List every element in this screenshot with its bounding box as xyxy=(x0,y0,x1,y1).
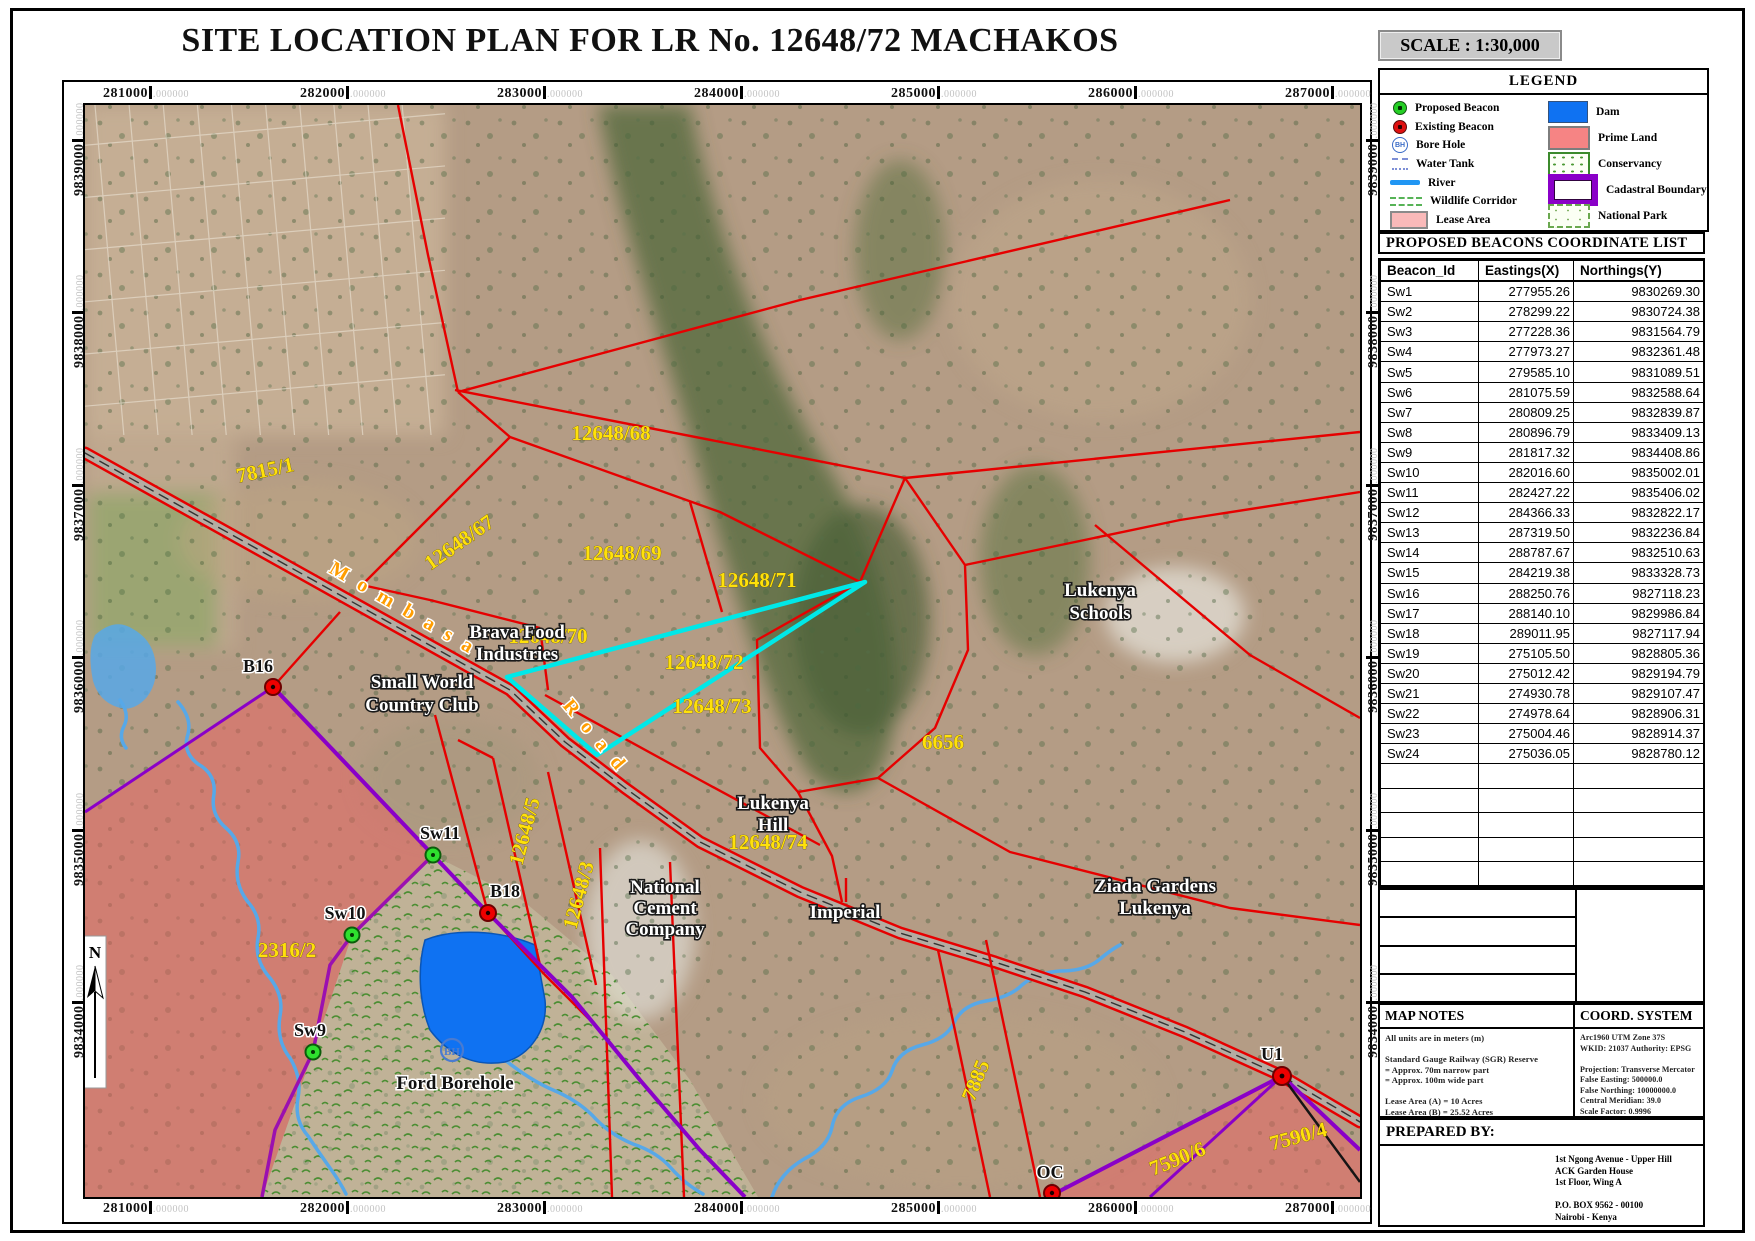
northing-cell: 9830269.30 xyxy=(1574,281,1704,302)
table-row: Sw13 287319.50 9832236.84 xyxy=(1381,523,1704,543)
easting-cell: 277228.36 xyxy=(1479,322,1574,342)
easting-cell: 275004.46 xyxy=(1479,724,1574,744)
beacon-label: Sw11 xyxy=(420,823,460,843)
address-line: ACK Garden House xyxy=(1555,1166,1672,1178)
place-label: Cement xyxy=(633,898,697,919)
place-label: Hill xyxy=(758,815,789,836)
table-row: Sw12 284366.33 9832822.17 xyxy=(1381,503,1704,523)
water-tank-icon xyxy=(1392,158,1408,170)
table-row: Sw3 277228.36 9831564.79 xyxy=(1381,322,1704,342)
easting-cell: 288140.10 xyxy=(1479,603,1574,623)
axis-label-x: 287000.000000 xyxy=(1285,86,1371,102)
beacon-id-cell: Sw7 xyxy=(1381,402,1479,422)
table-row: Sw18 289011.95 9827117.94 xyxy=(1381,623,1704,643)
prime-land-swatch xyxy=(1548,126,1590,150)
proposed-beacon-icon xyxy=(1393,101,1407,115)
parcel-label: 6656 xyxy=(922,730,964,754)
coordinate-system: COORD. SYSTEM Arc1960 UTM Zone 37SWKID: … xyxy=(1575,1005,1703,1116)
easting-cell: 278299.22 xyxy=(1479,302,1574,322)
easting-cell: 280809.25 xyxy=(1479,402,1574,422)
axis-label-x: 285000.000000 xyxy=(891,86,977,102)
parcel-label: 12648/68 xyxy=(571,421,650,445)
beacon-id-cell: Sw8 xyxy=(1381,422,1479,442)
prepared-by-lines: 1st Ngong Avenue - Upper HillACK Garden … xyxy=(1555,1154,1672,1223)
empty-row xyxy=(1381,813,1704,837)
northing-cell: 9832361.48 xyxy=(1574,342,1704,362)
northing-cell: 9834408.86 xyxy=(1574,442,1704,462)
beacon-id-cell: Sw12 xyxy=(1381,503,1479,523)
parcel-label: 12648/69 xyxy=(582,541,661,565)
empty-row xyxy=(1381,837,1704,861)
legend-item-prime-land: Prime Land xyxy=(1548,125,1707,151)
table-row: Sw11 282427.22 9835406.02 xyxy=(1381,483,1704,503)
easting-cell: 282427.22 xyxy=(1479,483,1574,503)
note-line: Lease Area (A) = 10 Acres xyxy=(1385,1096,1570,1107)
northing-cell: 9828906.31 xyxy=(1574,704,1704,724)
easting-cell: 281075.59 xyxy=(1479,382,1574,402)
easting-cell: 288787.67 xyxy=(1479,543,1574,563)
northing-cell: 9829107.47 xyxy=(1574,683,1704,703)
notes-section: MAP NOTES All units are in meters (m)Sta… xyxy=(1378,1003,1705,1118)
place-label: Industries xyxy=(476,644,558,665)
beacon-id-cell: Sw9 xyxy=(1381,442,1479,462)
legend-item-dam: Dam xyxy=(1548,99,1707,125)
place-label: Ziada Gardens xyxy=(1094,876,1216,897)
beacon-id-cell: Sw10 xyxy=(1381,462,1479,482)
table-row: Sw1 277955.26 9830269.30 xyxy=(1381,281,1704,302)
easting-cell: 274930.78 xyxy=(1479,683,1574,703)
existing-beacon-icon xyxy=(1393,120,1407,134)
prepared-by-title: PREPARED BY: xyxy=(1380,1120,1703,1146)
beacon-id-cell: Sw5 xyxy=(1381,362,1479,382)
coord-line: Projection: Transverse Mercator xyxy=(1580,1065,1700,1076)
empty-row xyxy=(1381,764,1704,788)
axis-label-x: 281000.000000 xyxy=(103,86,189,102)
northing-cell: 9833328.73 xyxy=(1574,563,1704,583)
axis-label-x: 284000.000000 xyxy=(694,1201,780,1217)
northing-cell: 9831089.51 xyxy=(1574,362,1704,382)
table-row: Sw2 278299.22 9830724.38 xyxy=(1381,302,1704,322)
place-label: National xyxy=(630,877,700,898)
table-header-row: Beacon_Id Eastings(X) Northings(Y) xyxy=(1381,261,1704,282)
coord-line: Arc1960 UTM Zone 37S xyxy=(1580,1033,1700,1044)
beacon-label: Sw9 xyxy=(294,1020,326,1040)
beacon-id-cell: Sw6 xyxy=(1381,382,1479,402)
note-line xyxy=(1385,1086,1570,1097)
easting-cell: 275105.50 xyxy=(1479,643,1574,663)
northing-cell: 9832236.84 xyxy=(1574,523,1704,543)
note-line: Standard Gauge Railway (SGR) Reserve xyxy=(1385,1054,1570,1065)
existing-beacon-icon xyxy=(480,905,496,921)
address-line: 1st Floor, Wing A xyxy=(1555,1177,1672,1189)
easting-cell: 284219.38 xyxy=(1479,563,1574,583)
legend-title: LEGEND xyxy=(1380,70,1707,95)
beacon-coordinate-table: Beacon_Id Eastings(X) Northings(Y) Sw1 2… xyxy=(1378,258,1705,888)
table-row: Sw5 279585.10 9831089.51 xyxy=(1381,362,1704,382)
empty-grid-section xyxy=(1378,888,1705,1003)
beacon-id-cell: Sw24 xyxy=(1381,744,1479,764)
map-canvas: 7815/1 12648/67 12648/68 12648/69 12648/… xyxy=(83,103,1362,1199)
scale-label: SCALE : 1:30,000 xyxy=(1400,35,1540,56)
empty-row xyxy=(1380,975,1575,1001)
beacon-label: B18 xyxy=(490,881,520,901)
place-label: Small World xyxy=(371,672,474,693)
empty-row xyxy=(1381,861,1704,885)
beacon-id-cell: Sw18 xyxy=(1381,623,1479,643)
easting-cell: 280896.79 xyxy=(1479,422,1574,442)
address-line xyxy=(1555,1189,1672,1201)
axis-label-x: 287000.000000 xyxy=(1285,1201,1371,1217)
axis-label-x: 282000.000000 xyxy=(300,86,386,102)
existing-beacon-icon xyxy=(265,679,281,695)
legend-item-lease-area: Lease Area xyxy=(1390,211,1548,230)
northing-cell: 9835002.01 xyxy=(1574,462,1704,482)
beacon-id-cell: Sw16 xyxy=(1381,583,1479,603)
beacon-table-title: PROPOSED BEACONS COORDINATE LIST xyxy=(1378,232,1705,254)
address-line: 1st Ngong Avenue - Upper Hill xyxy=(1555,1154,1672,1166)
dam-swatch xyxy=(1548,101,1588,123)
axis-label-x: 285000.000000 xyxy=(891,1201,977,1217)
table-row: Sw20 275012.42 9829194.79 xyxy=(1381,663,1704,683)
axis-label-x: 282000.000000 xyxy=(300,1201,386,1217)
northing-cell: 9832822.17 xyxy=(1574,503,1704,523)
borehole-icon: BH xyxy=(1392,137,1408,153)
easting-cell: 275036.05 xyxy=(1479,744,1574,764)
axis-label-x: 283000.000000 xyxy=(497,1201,583,1217)
northing-cell: 9833409.13 xyxy=(1574,422,1704,442)
beacon-id-cell: Sw21 xyxy=(1381,683,1479,703)
note-line: = Approx. 100m wide part xyxy=(1385,1075,1570,1086)
place-label-ford-borehole: Ford Borehole xyxy=(396,1073,513,1094)
wildlife-corridor-icon xyxy=(1390,197,1422,206)
empty-row xyxy=(1380,890,1575,918)
beacon-label: Sw10 xyxy=(324,903,365,923)
place-label: Lukenya xyxy=(1064,580,1136,601)
beacon-label: U1 xyxy=(1261,1044,1283,1064)
empty-row xyxy=(1381,788,1704,812)
easting-cell: 281817.32 xyxy=(1479,442,1574,462)
place-label: Country Club xyxy=(365,695,479,716)
table-row: Sw7 280809.25 9832839.87 xyxy=(1381,402,1704,422)
beacon-label: B16 xyxy=(243,656,273,676)
parcel-label: 12648/72 xyxy=(664,650,743,674)
address-line: P.O. BOX 9562 - 00100 xyxy=(1555,1200,1672,1212)
place-label: Lukenya xyxy=(1119,898,1191,919)
empty-row xyxy=(1380,947,1575,975)
table-row: Sw8 280896.79 9833409.13 xyxy=(1381,422,1704,442)
page-title: SITE LOCATION PLAN FOR LR No. 12648/72 M… xyxy=(150,22,1150,60)
axis-label-x: 286000.000000 xyxy=(1088,86,1174,102)
beacon-id-cell: Sw19 xyxy=(1381,643,1479,663)
coord-line: Scale Factor: 0.9996 xyxy=(1580,1107,1700,1118)
northing-cell: 9835406.02 xyxy=(1574,483,1704,503)
empty-cell xyxy=(1575,890,1703,1001)
note-line: All units are in meters (m) xyxy=(1385,1033,1570,1044)
beacon-id-cell: Sw14 xyxy=(1381,543,1479,563)
parcel-label: 12648/71 xyxy=(717,568,796,592)
table-row: Sw23 275004.46 9828914.37 xyxy=(1381,724,1704,744)
northing-cell: 9831564.79 xyxy=(1574,322,1704,342)
prepared-by-section: PREPARED BY: 1st Ngong Avenue - Upper Hi… xyxy=(1378,1118,1705,1227)
easting-cell: 289011.95 xyxy=(1479,623,1574,643)
column-header: Beacon_Id xyxy=(1381,261,1479,282)
column-header: Eastings(X) xyxy=(1479,261,1574,282)
legend-item-national-park: National Park xyxy=(1548,203,1707,229)
beacon-id-cell: Sw3 xyxy=(1381,322,1479,342)
cadastral-boundary-swatch xyxy=(1548,174,1598,206)
scale-box: SCALE : 1:30,000 xyxy=(1378,30,1562,61)
coord-line: False Northing: 10000000.0 xyxy=(1580,1086,1700,1097)
table-row: Sw6 281075.59 9832588.64 xyxy=(1381,382,1704,402)
table-row: Sw17 288140.10 9829986.84 xyxy=(1381,603,1704,623)
easting-cell: 277955.26 xyxy=(1479,281,1574,302)
place-label: Lukenya xyxy=(737,793,809,814)
map-notes-lines: All units are in meters (m)Standard Gaug… xyxy=(1380,1029,1573,1117)
place-label: Brava Food xyxy=(469,622,565,643)
beacon-id-cell: Sw1 xyxy=(1381,281,1479,302)
legend: LEGEND Proposed Beacon Existing Beacon B… xyxy=(1378,68,1709,232)
place-label: Company xyxy=(625,919,705,940)
table-row: Sw4 277973.27 9832361.48 xyxy=(1381,342,1704,362)
beacon-id-cell: Sw15 xyxy=(1381,563,1479,583)
proposed-beacon-icon xyxy=(426,848,441,863)
place-label: Schools xyxy=(1069,603,1130,624)
beacon-id-cell: Sw4 xyxy=(1381,342,1479,362)
column-header: Northings(Y) xyxy=(1574,261,1704,282)
northing-cell: 9829194.79 xyxy=(1574,663,1704,683)
easting-cell: 279585.10 xyxy=(1479,362,1574,382)
easting-cell: 288250.76 xyxy=(1479,583,1574,603)
coord-line: False Easting: 500000.0 xyxy=(1580,1075,1700,1086)
northing-cell: 9828780.12 xyxy=(1574,744,1704,764)
empty-row xyxy=(1380,918,1575,946)
legend-item-river: River xyxy=(1390,173,1548,192)
svg-text:N: N xyxy=(89,943,102,962)
map-notes-title: MAP NOTES xyxy=(1380,1005,1573,1029)
northing-cell: 9832510.63 xyxy=(1574,543,1704,563)
proposed-beacon-icon xyxy=(345,928,360,943)
north-arrow-icon: N xyxy=(84,936,106,1088)
parcel-label: 2316/2 xyxy=(258,938,316,962)
table-row: Sw9 281817.32 9834408.86 xyxy=(1381,442,1704,462)
beacon-id-cell: Sw20 xyxy=(1381,663,1479,683)
existing-beacon-icon xyxy=(1044,1185,1060,1199)
axis-label-x: 284000.000000 xyxy=(694,86,780,102)
table-row: Sw24 275036.05 9828780.12 xyxy=(1381,744,1704,764)
easting-cell: 277973.27 xyxy=(1479,342,1574,362)
northing-cell: 9827118.23 xyxy=(1574,583,1704,603)
address-line: Nairobi - Kenya xyxy=(1555,1212,1672,1224)
legend-item-existing-beacon: Existing Beacon xyxy=(1390,118,1548,137)
table-row: Sw10 282016.60 9835002.01 xyxy=(1381,462,1704,482)
table-row: Sw22 274978.64 9828906.31 xyxy=(1381,704,1704,724)
svg-text:BH: BH xyxy=(444,1046,460,1058)
northing-cell: 9829986.84 xyxy=(1574,603,1704,623)
parcel-label: 12648/73 xyxy=(672,694,751,718)
easting-cell: 284366.33 xyxy=(1479,503,1574,523)
table-row: Sw21 274930.78 9829107.47 xyxy=(1381,683,1704,703)
existing-beacon-icon xyxy=(1273,1067,1291,1085)
beacon-id-cell: Sw22 xyxy=(1381,704,1479,724)
northing-cell: 9832588.64 xyxy=(1574,382,1704,402)
coordinate-system-title: COORD. SYSTEM xyxy=(1575,1005,1703,1029)
easting-cell: 274978.64 xyxy=(1479,704,1574,724)
coord-line: Central Meridian: 39.0 xyxy=(1580,1096,1700,1107)
northing-cell: 9828805.36 xyxy=(1574,643,1704,663)
axis-label-x: 281000.000000 xyxy=(103,1201,189,1217)
proposed-beacon-icon xyxy=(306,1045,321,1060)
river-icon xyxy=(1390,180,1420,185)
table-row: Sw14 288787.67 9832510.63 xyxy=(1381,543,1704,563)
legend-item-water-tank: Water Tank xyxy=(1390,155,1548,174)
legend-item-bore-hole: BHBore Hole xyxy=(1390,136,1548,155)
beacon-id-cell: Sw17 xyxy=(1381,603,1479,623)
map-notes: MAP NOTES All units are in meters (m)Sta… xyxy=(1380,1005,1575,1116)
legend-item-proposed-beacon: Proposed Beacon xyxy=(1390,99,1548,118)
note-line: = Approx. 70m narrow part xyxy=(1385,1065,1570,1076)
easting-cell: 275012.42 xyxy=(1479,663,1574,683)
note-line xyxy=(1385,1044,1570,1055)
beacon-id-cell: Sw2 xyxy=(1381,302,1479,322)
table-row: Sw19 275105.50 9828805.36 xyxy=(1381,643,1704,663)
legend-item-cadastral-boundary: Cadastral Boundary xyxy=(1548,177,1707,203)
northing-cell: 9830724.38 xyxy=(1574,302,1704,322)
beacon-id-cell: Sw11 xyxy=(1381,483,1479,503)
easting-cell: 287319.50 xyxy=(1479,523,1574,543)
coord-line: WKID: 21037 Authority: EPSG xyxy=(1580,1044,1700,1055)
axis-label-x: 286000.000000 xyxy=(1088,1201,1174,1217)
place-label: Imperial xyxy=(810,902,881,923)
northing-cell: 9827117.94 xyxy=(1574,623,1704,643)
table-row: Sw15 284219.38 9833328.73 xyxy=(1381,563,1704,583)
northing-cell: 9832839.87 xyxy=(1574,402,1704,422)
legend-item-wildlife-corridor: Wildlife Corridor xyxy=(1390,192,1548,211)
easting-cell: 282016.60 xyxy=(1479,462,1574,482)
conservancy-swatch xyxy=(1548,152,1590,176)
national-park-swatch xyxy=(1548,204,1590,228)
beacon-label: OC xyxy=(1037,1162,1064,1182)
coord-line xyxy=(1580,1054,1700,1065)
beacon-id-cell: Sw23 xyxy=(1381,724,1479,744)
table-row: Sw16 288250.76 9827118.23 xyxy=(1381,583,1704,603)
note-line: Lease Area (B) = 25.52 Acres xyxy=(1385,1107,1570,1118)
lease-area-swatch xyxy=(1390,211,1428,229)
axis-label-x: 283000.000000 xyxy=(497,86,583,102)
northing-cell: 9828914.37 xyxy=(1574,724,1704,744)
beacon-id-cell: Sw13 xyxy=(1381,523,1479,543)
